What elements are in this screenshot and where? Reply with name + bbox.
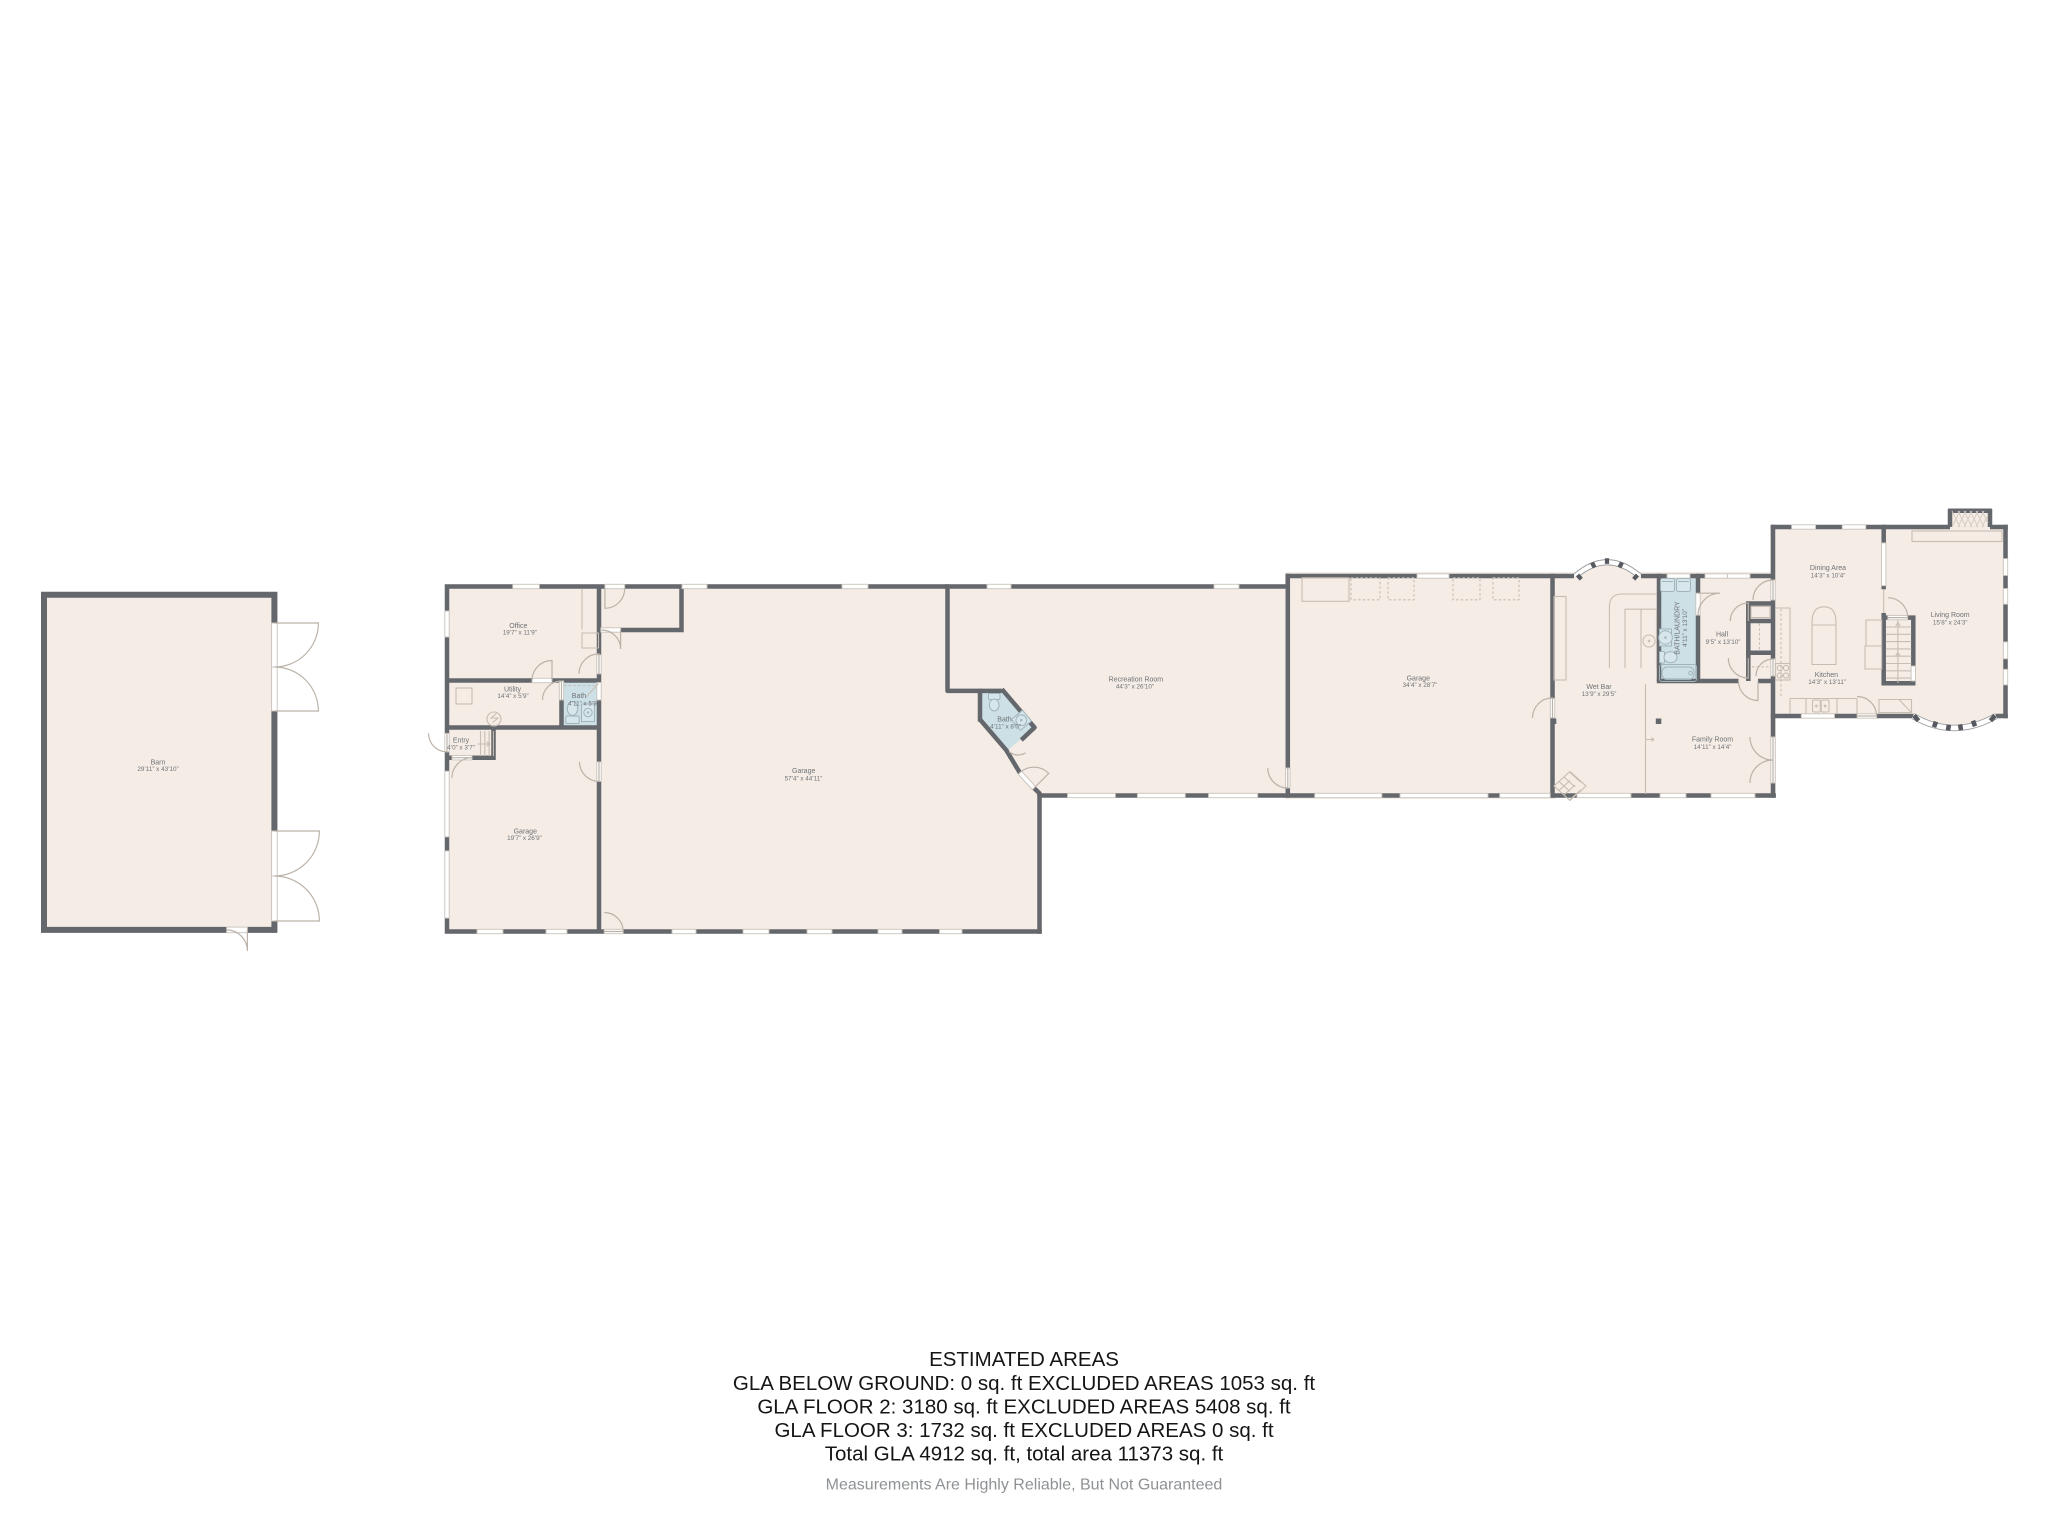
svg-text:Living Room: Living Room — [1931, 612, 1970, 619]
svg-text:GLA BELOW GROUND: 0 sq. ft EXC: GLA BELOW GROUND: 0 sq. ft EXCLUDED AREA… — [733, 1372, 1315, 1395]
svg-text:4’11” x 5’9”: 4’11” x 5’9” — [568, 700, 599, 707]
svg-text:9’5” x 13’10”: 9’5” x 13’10” — [1706, 639, 1741, 646]
svg-text:15’8” x 24’3”: 15’8” x 24’3” — [1933, 619, 1968, 626]
svg-text:Dining Area: Dining Area — [1810, 565, 1846, 572]
svg-text:14’3” x 13’11”: 14’3” x 13’11” — [1808, 679, 1846, 686]
svg-text:4’11” x 8’0”: 4’11” x 8’0” — [990, 724, 1021, 731]
svg-text:19’7” x 26’9”: 19’7” x 26’9” — [507, 835, 542, 842]
svg-text:57’4” x 44’11”: 57’4” x 44’11” — [785, 776, 823, 783]
svg-text:14’4” x 5’9”: 14’4” x 5’9” — [497, 693, 528, 700]
svg-text:Family Room: Family Room — [1692, 737, 1733, 744]
svg-text:Bath: Bath — [572, 693, 587, 700]
svg-text:19’7” x 11’9”: 19’7” x 11’9” — [503, 630, 537, 637]
svg-text:Measurements Are Highly Reliab: Measurements Are Highly Reliable, But No… — [826, 1477, 1223, 1494]
svg-text:Kitchen: Kitchen — [1815, 672, 1838, 679]
svg-text:ESTIMATED AREAS: ESTIMATED AREAS — [929, 1348, 1119, 1371]
svg-text:GLA FLOOR 2: 3180 sq. ft EXCLU: GLA FLOOR 2: 3180 sq. ft EXCLUDED AREAS … — [757, 1396, 1291, 1419]
svg-text:14’11” x 14’4”: 14’11” x 14’4” — [1694, 744, 1732, 751]
svg-text:Wet Bar: Wet Bar — [1586, 684, 1612, 691]
svg-text:Hall: Hall — [1716, 632, 1729, 639]
svg-text:Garage: Garage — [792, 768, 815, 775]
svg-text:44’3” x 26’10”: 44’3” x 26’10” — [1116, 683, 1154, 690]
svg-text:13’9” x 29’5”: 13’9” x 29’5” — [1582, 691, 1617, 698]
svg-text:BATH/LAUNDRY: BATH/LAUNDRY — [1675, 601, 1682, 655]
svg-text:Total GLA 4912 sq. ft, total a: Total GLA 4912 sq. ft, total area 11373 … — [825, 1443, 1224, 1466]
svg-text:4’0” x 3’7”: 4’0” x 3’7” — [447, 745, 475, 752]
svg-text:14’3” x 10’4”: 14’3” x 10’4” — [1811, 572, 1846, 579]
svg-text:GLA FLOOR 3: 1732 sq. ft EXCLU: GLA FLOOR 3: 1732 sq. ft EXCLUDED AREAS … — [774, 1419, 1273, 1442]
svg-text:29’11” x 43’10”: 29’11” x 43’10” — [137, 766, 178, 773]
svg-text:Bath: Bath — [997, 716, 1012, 723]
svg-text:4’11” x 13’10”: 4’11” x 13’10” — [1682, 609, 1689, 647]
svg-text:34’4” x 28’7”: 34’4” x 28’7” — [1403, 682, 1438, 689]
svg-text:Entry: Entry — [453, 737, 470, 744]
